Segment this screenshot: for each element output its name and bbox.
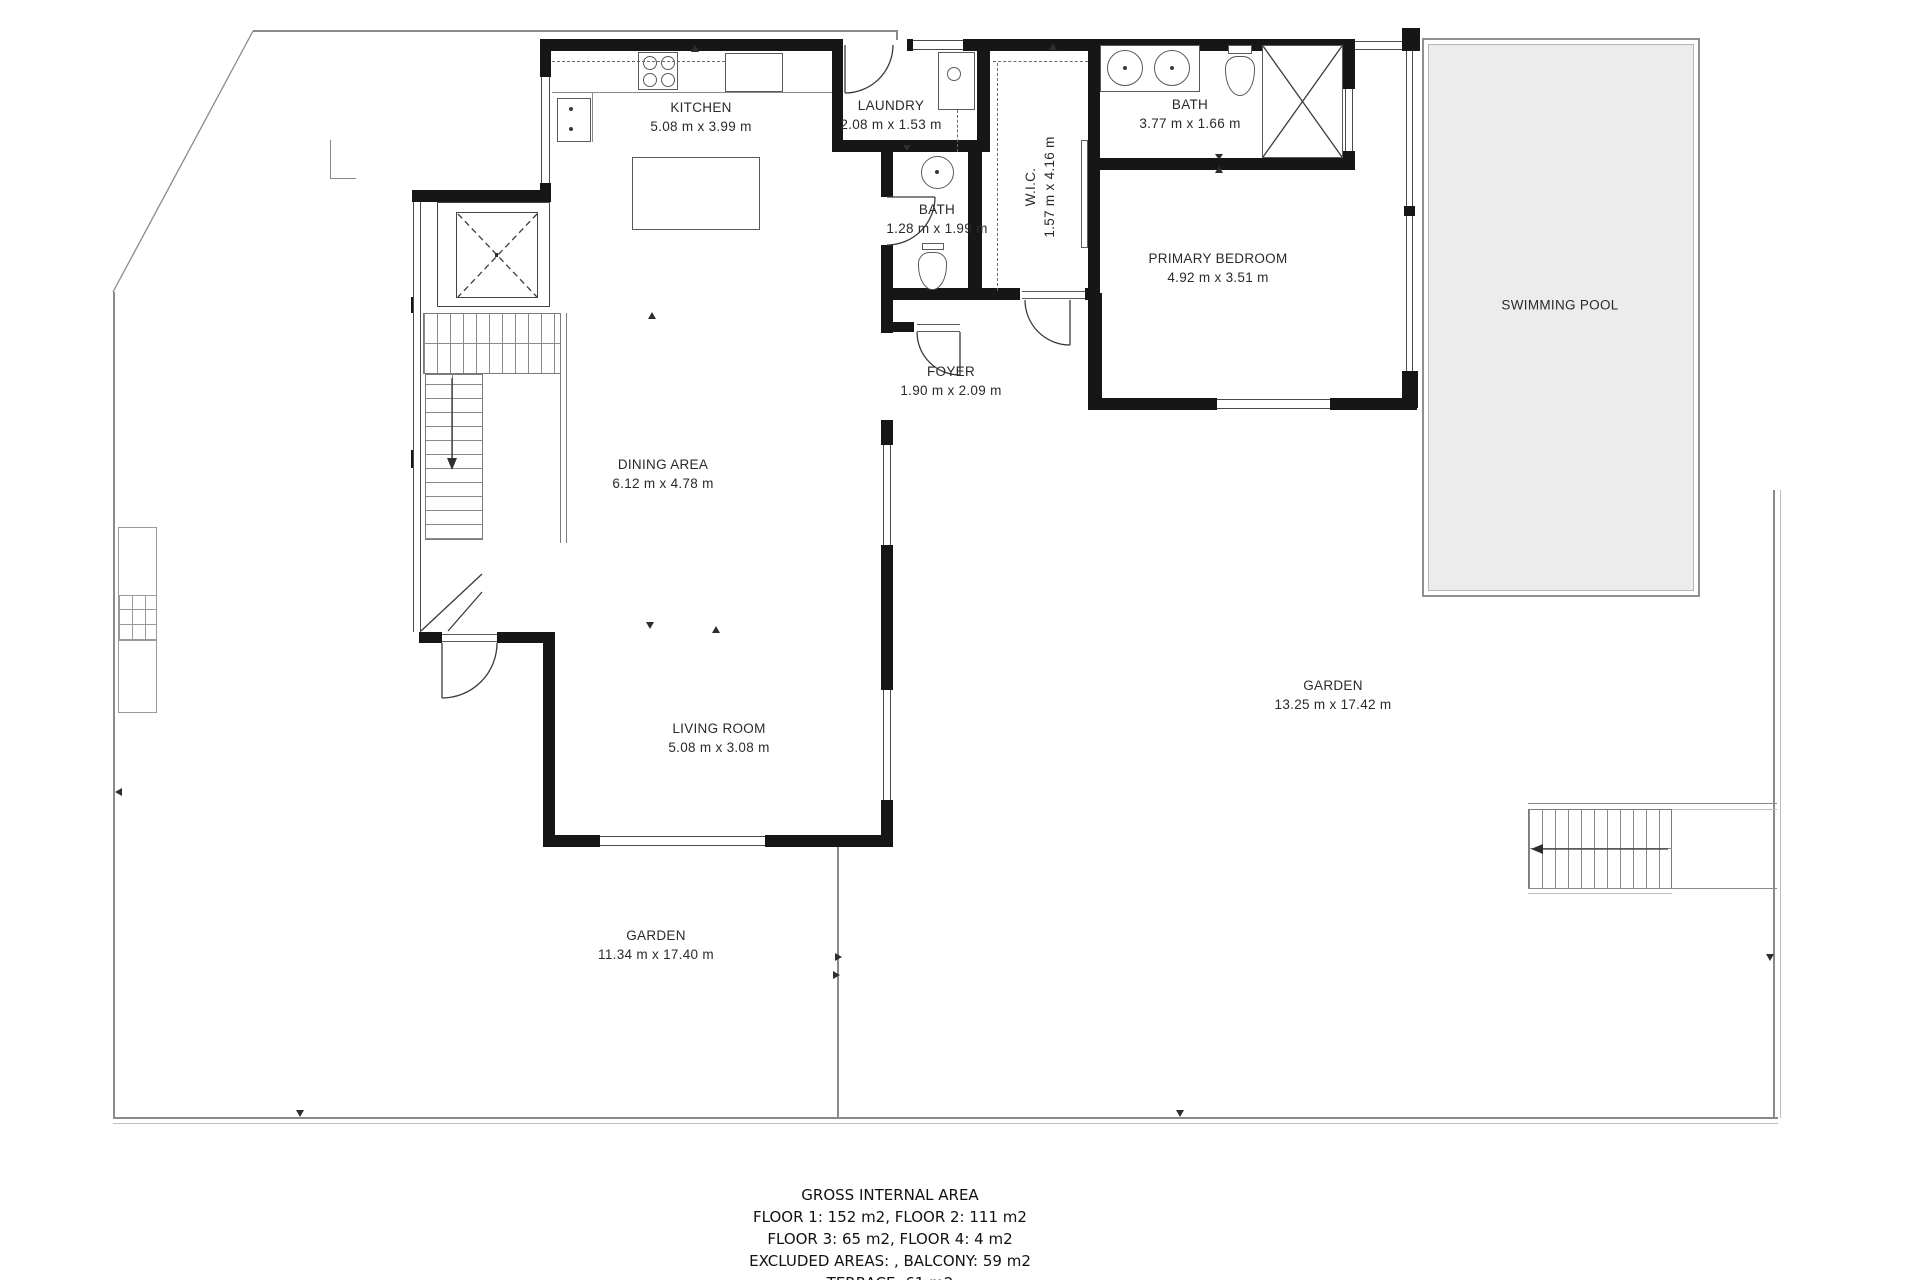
kitchen-island <box>632 157 760 230</box>
site-detail-line-h <box>330 178 356 179</box>
burner-icon <box>661 73 675 87</box>
wardrobe-dashed-line <box>997 63 998 291</box>
stair-winder-lines <box>421 574 482 631</box>
room-dims: 1.57 m x 4.16 m <box>1040 136 1059 237</box>
wall-corner <box>1402 371 1418 408</box>
site-boundary-bottom-2 <box>113 1123 1778 1124</box>
label-swimming-pool: SWIMMING POOL <box>1501 296 1618 315</box>
window <box>883 690 891 800</box>
site-boundary-right-2 <box>1780 490 1781 1118</box>
room-name: LAUNDRY <box>840 96 941 115</box>
room-name: DINING AREA <box>612 455 713 474</box>
wall-corner <box>1402 28 1420 51</box>
wall-segment <box>1088 293 1102 410</box>
room-name: PRIMARY BEDROOM <box>1148 249 1287 268</box>
exterior-staircase <box>1528 809 1672 889</box>
elevator-car <box>456 212 538 298</box>
door-sill <box>917 324 960 325</box>
shower <box>1262 45 1343 158</box>
staircase-rail <box>560 313 567 543</box>
room-dims: 1.90 m x 2.09 m <box>900 381 1001 400</box>
area-summary-line: TERRACE: 61 m2 <box>749 1272 1031 1280</box>
ext-stairs-bottom-line-2 <box>1528 893 1672 894</box>
window <box>600 836 765 846</box>
site-boundary-top <box>253 30 897 32</box>
wall-segment <box>543 835 600 847</box>
washer-door-icon <box>947 67 961 81</box>
wall-segment <box>540 39 843 51</box>
staircase-lower-flight <box>425 374 483 540</box>
survey-marker <box>648 312 656 319</box>
window <box>1345 89 1353 151</box>
area-dims: 11.34 m x 17.40 m <box>598 945 714 964</box>
room-label-foyer: FOYER 1.90 m x 2.09 m <box>900 362 1001 400</box>
ext-stairs-bottom-line <box>1528 888 1777 889</box>
site-boundary-right <box>1773 490 1775 1118</box>
site-boundary-left <box>113 292 115 1119</box>
room-name: BATH <box>1139 95 1240 114</box>
room-label-bath-main: BATH 3.77 m x 1.66 m <box>1139 95 1240 133</box>
swimming-pool <box>1422 38 1700 597</box>
door-arc <box>442 643 497 698</box>
burner-icon <box>661 56 675 70</box>
kitchen-sink <box>557 98 591 142</box>
site-boundary-connector <box>896 30 898 40</box>
room-label-kitchen: KITCHEN 5.08 m x 3.99 m <box>650 98 751 136</box>
swimming-pool-water <box>1428 44 1694 591</box>
wall-segment <box>412 190 551 202</box>
window <box>913 40 963 50</box>
counter-edge <box>552 92 832 93</box>
area-summary-line: FLOOR 3: 65 m2, FLOOR 4: 4 m2 <box>749 1228 1031 1250</box>
area-summary: GROSS INTERNAL AREA FLOOR 1: 152 m2, FLO… <box>749 1184 1031 1280</box>
window <box>1217 399 1330 409</box>
room-dims: 1.28 m x 1.99 m <box>886 219 987 238</box>
door-arc <box>1025 300 1070 345</box>
site-detail-line-v <box>330 140 331 178</box>
door-sill <box>1022 298 1085 299</box>
counter-edge <box>592 92 593 142</box>
window <box>883 445 891 545</box>
staircase-mid-line <box>423 343 567 344</box>
wall-segment <box>1098 158 1343 170</box>
wall-segment <box>497 632 555 643</box>
ext-stairs-top-line <box>1528 803 1777 804</box>
wall-segment <box>1343 151 1355 170</box>
room-dims: 5.08 m x 3.08 m <box>668 738 769 757</box>
laundry-dashed-line <box>957 110 958 152</box>
garden-divider-line <box>837 847 839 1118</box>
toilet <box>1225 56 1255 96</box>
toilet-tank <box>922 243 944 250</box>
room-name: LIVING ROOM <box>668 719 769 738</box>
door-arc <box>845 45 893 93</box>
area-name: GARDEN <box>1275 676 1392 695</box>
window <box>541 77 550 183</box>
basin-drain-dot <box>1170 66 1174 70</box>
outdoor-grill-grid <box>118 595 157 641</box>
wall-segment <box>540 39 551 77</box>
fridge <box>725 53 783 92</box>
wall-segment <box>881 152 893 197</box>
room-name: FOYER <box>900 362 1001 381</box>
room-dims: 6.12 m x 4.78 m <box>612 474 713 493</box>
room-label-wic: W.I.C. 1.57 m x 4.16 m <box>1021 136 1059 237</box>
area-summary-line: FLOOR 1: 152 m2, FLOOR 2: 111 m2 <box>749 1206 1031 1228</box>
survey-marker <box>646 622 654 629</box>
wall-segment <box>881 322 914 332</box>
wall-segment <box>881 800 893 847</box>
faucet-dot <box>569 127 573 131</box>
toilet-tank <box>1228 45 1252 54</box>
door-sill <box>1022 291 1085 292</box>
area-summary-title: GROSS INTERNAL AREA <box>749 1184 1031 1206</box>
survey-marker <box>115 788 122 796</box>
room-label-dining: DINING AREA 6.12 m x 4.78 m <box>612 455 713 493</box>
faucet-dot <box>569 107 573 111</box>
wall-segment <box>881 545 893 690</box>
site-boundary-bottom <box>113 1117 1778 1119</box>
room-name: W.I.C. <box>1021 136 1040 237</box>
wall-segment <box>881 420 893 445</box>
survey-marker <box>712 626 720 633</box>
wardrobe-rail <box>1081 140 1088 248</box>
area-summary-line: EXCLUDED AREAS: , BALCONY: 59 m2 <box>749 1250 1031 1272</box>
washer <box>938 52 975 110</box>
window <box>1406 216 1413 371</box>
window <box>1355 41 1402 50</box>
room-name: KITCHEN <box>650 98 751 117</box>
toilet <box>918 252 947 290</box>
site-boundary-diagonal <box>113 31 253 292</box>
wall-segment <box>1343 39 1355 89</box>
room-label-living: LIVING ROOM 5.08 m x 3.08 m <box>668 719 769 757</box>
door-sill <box>442 634 497 635</box>
room-label-primary-bedroom: PRIMARY BEDROOM 4.92 m x 3.51 m <box>1148 249 1287 287</box>
area-name: SWIMMING POOL <box>1501 296 1618 315</box>
burner-icon <box>643 73 657 87</box>
room-dims: 3.77 m x 1.66 m <box>1139 114 1240 133</box>
room-name: BATH <box>886 200 987 219</box>
door-sill <box>442 641 497 642</box>
wall-segment <box>977 39 990 140</box>
survey-marker <box>296 1110 304 1117</box>
basin-drain-dot <box>1123 66 1127 70</box>
label-garden-east: GARDEN 13.25 m x 17.42 m <box>1275 676 1392 714</box>
window <box>413 202 421 632</box>
room-dims: 2.08 m x 1.53 m <box>840 115 941 134</box>
survey-marker <box>1176 1110 1184 1117</box>
window <box>1406 51 1413 206</box>
wall-segment <box>765 835 893 847</box>
cabinet-dashed-line <box>552 61 725 62</box>
wall-segment <box>543 643 555 843</box>
wall-segment <box>1404 206 1415 216</box>
area-dims: 13.25 m x 17.42 m <box>1275 695 1392 714</box>
sink-drain-dot <box>935 170 939 174</box>
room-dims: 4.92 m x 3.51 m <box>1148 268 1287 287</box>
label-garden-south: GARDEN 11.34 m x 17.40 m <box>598 926 714 964</box>
wall-segment <box>419 632 442 643</box>
burner-icon <box>643 56 657 70</box>
ext-stairs-mid-line <box>1528 848 1672 849</box>
wall-segment <box>1088 398 1217 410</box>
door-sill <box>917 331 960 332</box>
staircase-center-line <box>452 374 453 464</box>
floor-plan: KITCHEN 5.08 m x 3.99 m LAUNDRY 2.08 m x… <box>0 0 1920 1280</box>
room-dims: 5.08 m x 3.99 m <box>650 117 751 136</box>
wall-segment <box>881 288 1020 300</box>
room-label-bath-small: BATH 1.28 m x 1.99 m <box>886 200 987 238</box>
wall-segment <box>832 140 990 152</box>
area-name: GARDEN <box>598 926 714 945</box>
cabinet-dashed-line <box>993 61 1088 62</box>
room-label-laundry: LAUNDRY 2.08 m x 1.53 m <box>840 96 941 134</box>
